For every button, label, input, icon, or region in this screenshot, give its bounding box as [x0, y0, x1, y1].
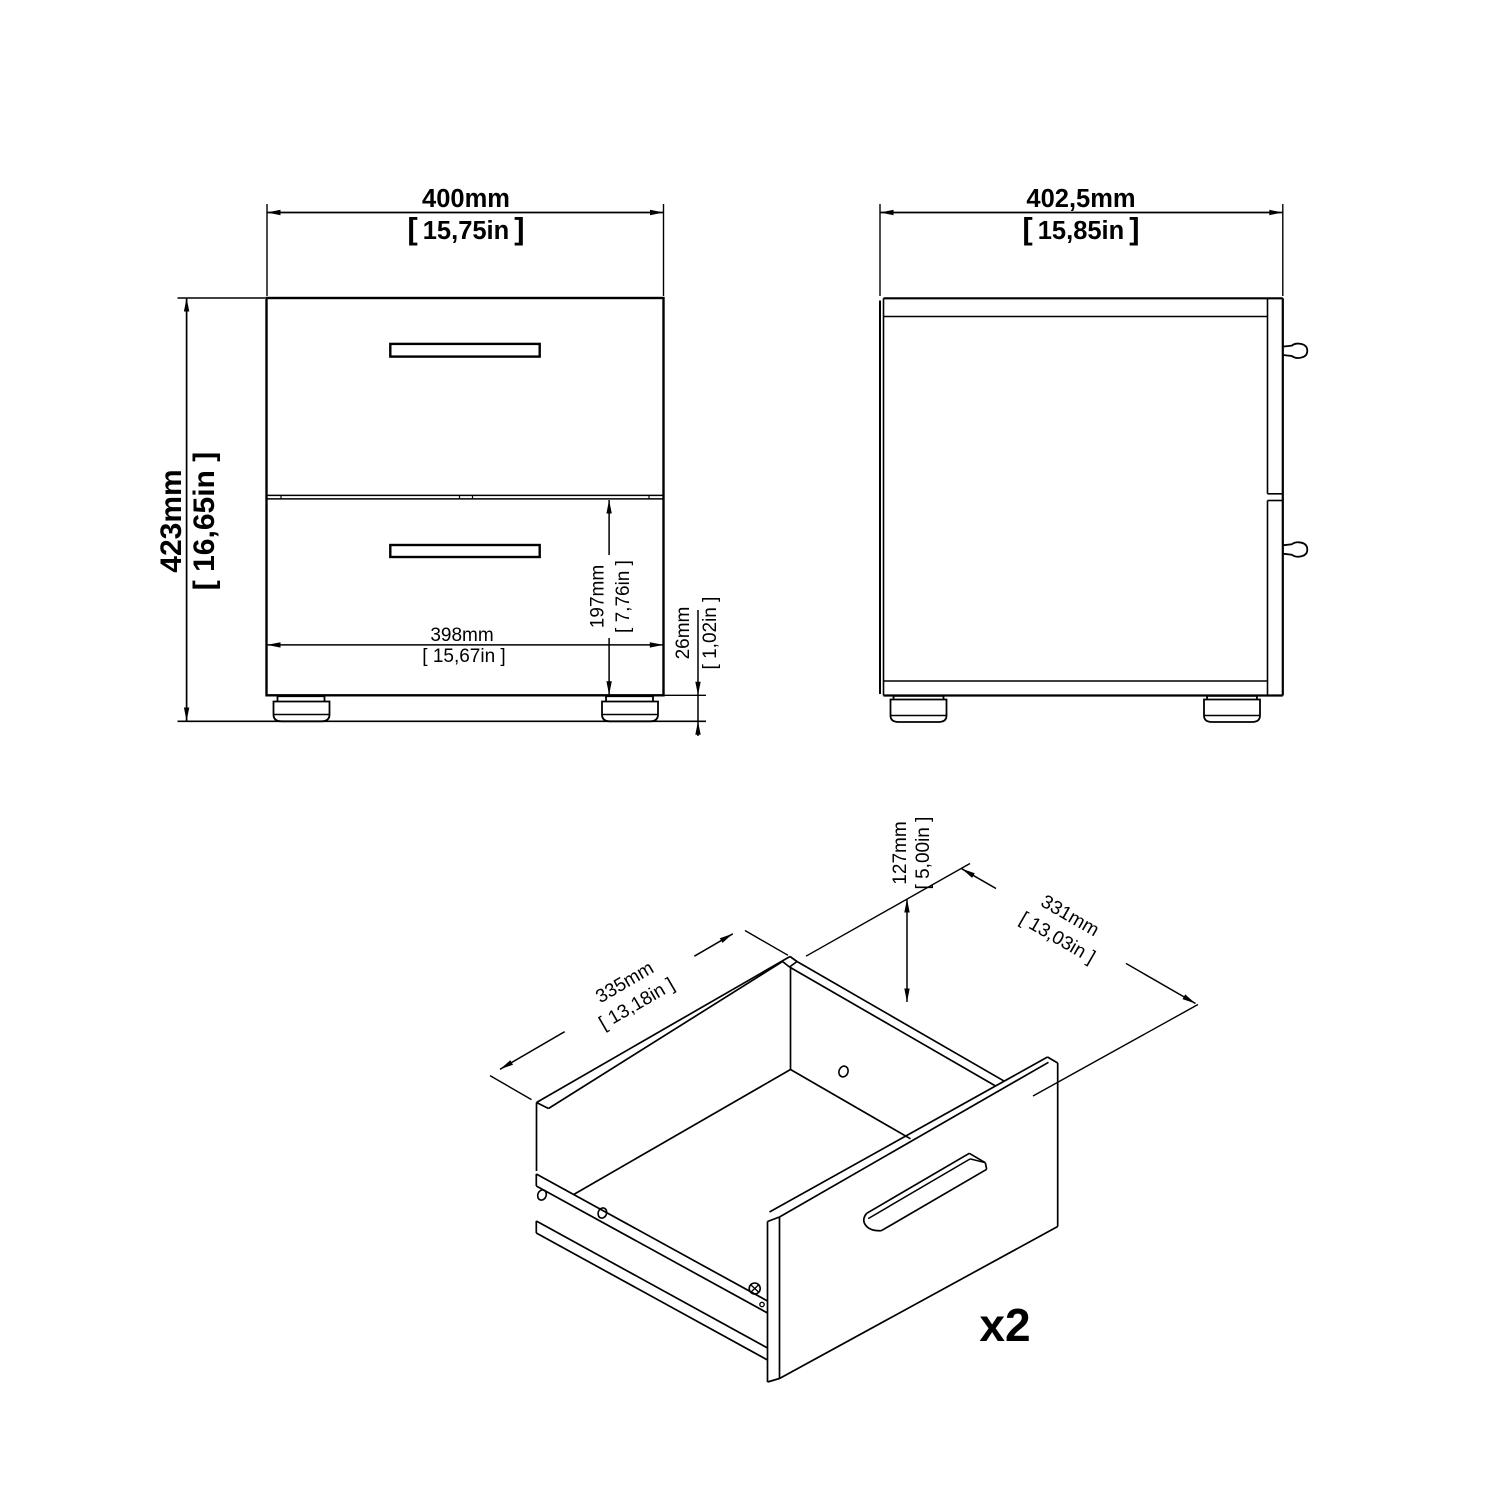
- svg-text:398mm: 398mm: [430, 625, 493, 646]
- svg-text:[ 1,02in ]: [ 1,02in ]: [700, 597, 721, 670]
- svg-text:[ 16,65in ]: [ 16,65in ]: [188, 452, 221, 590]
- svg-text:[ 15,67in ]: [ 15,67in ]: [422, 646, 505, 667]
- svg-text:x2: x2: [979, 1299, 1030, 1351]
- svg-text:197mm: 197mm: [588, 565, 609, 628]
- svg-text:[15,85in]: [15,85in]: [1022, 211, 1139, 246]
- svg-text:26mm: 26mm: [673, 607, 694, 660]
- svg-text:[15,75in]: [15,75in]: [407, 211, 524, 246]
- svg-text:[ 5,00in ]: [ 5,00in ]: [913, 817, 934, 890]
- svg-text:402,5mm: 402,5mm: [1026, 185, 1135, 213]
- svg-text:127mm: 127mm: [890, 821, 911, 884]
- svg-text:[ 7,76in ]: [ 7,76in ]: [613, 560, 634, 633]
- svg-text:400mm: 400mm: [422, 185, 510, 213]
- svg-text:423mm: 423mm: [155, 469, 188, 572]
